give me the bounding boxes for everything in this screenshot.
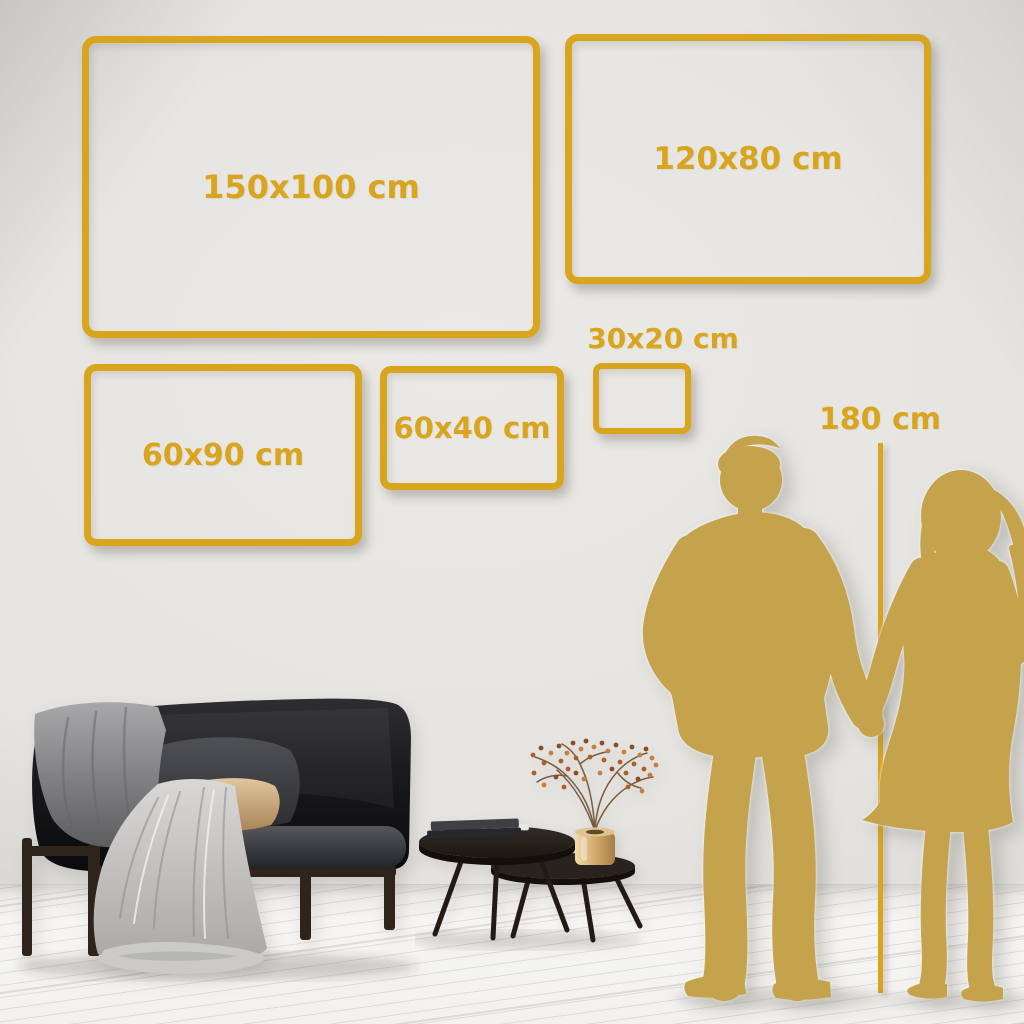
big-table: [419, 826, 575, 938]
size-frame-60x90: 60x90 cm: [84, 364, 362, 546]
size-frame-60x40: 60x40 cm: [380, 366, 564, 490]
size-frame-150x100: 150x100 cm: [82, 36, 540, 338]
woman-silhouette: [854, 470, 1024, 1002]
size-label-60x40: 60x40 cm: [394, 411, 551, 445]
books: [427, 818, 530, 839]
man-silhouette: [658, 436, 884, 1000]
size-guide-scene: 150x100 cm 120x80 cm 60x90 cm 60x40 cm 3…: [0, 0, 1024, 1024]
size-frame-30x20: [593, 363, 691, 434]
couple-silhouette: [628, 428, 1024, 1018]
size-label-120x80: 120x80 cm: [653, 141, 842, 177]
size-frame-120x80: 120x80 cm: [565, 34, 931, 284]
gold-vase: [575, 828, 615, 866]
size-label-30x20: 30x20 cm: [568, 322, 758, 355]
tables-floor-shadow: [415, 931, 640, 949]
size-label-60x90: 60x90 cm: [142, 438, 304, 473]
size-label-150x100: 150x100 cm: [202, 168, 420, 206]
sofa-illustration: [8, 688, 432, 988]
